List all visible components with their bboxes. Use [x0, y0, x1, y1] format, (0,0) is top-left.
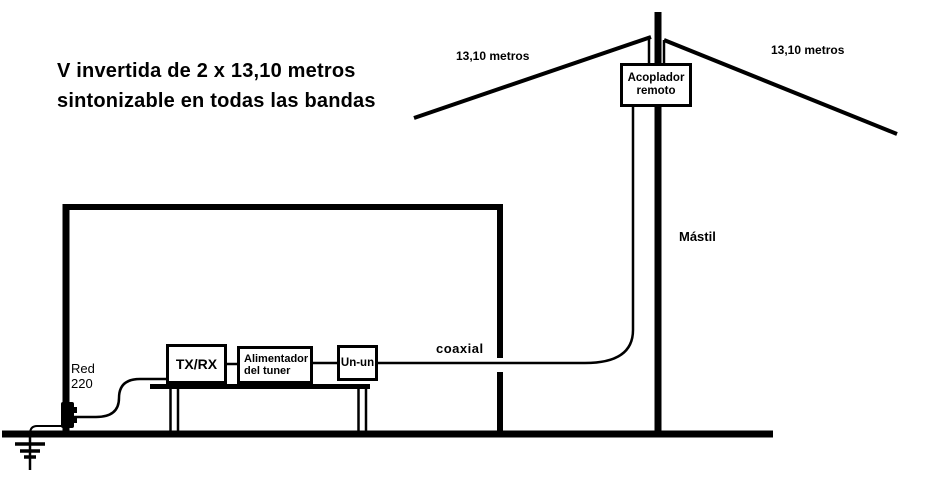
earth-ground-symbol: [15, 434, 45, 470]
coax-label: coaxial: [436, 341, 484, 356]
tuner-feeder-box: Alimentador del tuner: [237, 346, 313, 384]
wall-plug: [72, 417, 77, 423]
diagram-title-line1: V invertida de 2 x 13,10 metros: [57, 56, 376, 86]
diagram-title-line2: sintonizable en todas las bandas: [57, 86, 376, 116]
wall-plug: [72, 407, 77, 413]
tuner-feeder-line1: Alimentador: [244, 353, 308, 366]
antenna-wire-left: [414, 37, 651, 118]
left-wire-length-label: 13,10 metros: [456, 49, 529, 63]
balun-label: Un-un: [341, 357, 374, 369]
antenna-diagram: V invertida de 2 x 13,10 metros sintoniz…: [0, 0, 930, 485]
wall-plug: [61, 402, 74, 428]
remote-coupler-box: Acoplador remoto: [620, 63, 692, 107]
diagram-title: V invertida de 2 x 13,10 metros sintoniz…: [57, 56, 376, 116]
tuner-feeder-line2: del tuner: [244, 365, 290, 378]
mains-label-line1: Red: [71, 361, 95, 376]
house-outline: [63, 204, 503, 434]
mains-label: Red 220: [71, 361, 95, 391]
transceiver-box: TX/RX: [166, 344, 227, 384]
mast-label: Mástil: [679, 229, 716, 244]
transceiver-label: TX/RX: [176, 356, 217, 372]
coax-cable: [377, 107, 633, 363]
table-top: [150, 384, 370, 389]
balun-box: Un-un: [337, 345, 378, 381]
remote-coupler-line1: Acoplador: [628, 72, 685, 85]
mains-label-line2: 220: [71, 376, 95, 391]
remote-coupler-line2: remoto: [637, 85, 676, 98]
right-wire-length-label: 13,10 metros: [771, 43, 844, 57]
